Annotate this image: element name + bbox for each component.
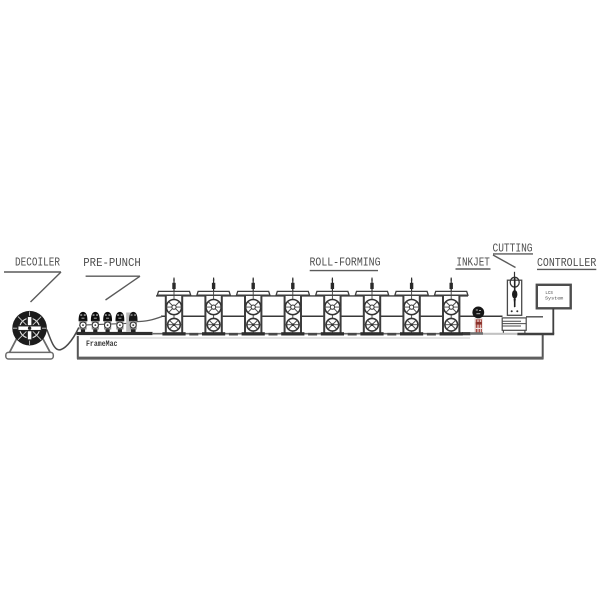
svg-text:INKJET: INKJET bbox=[456, 256, 490, 269]
svg-text:System: System bbox=[545, 296, 563, 302]
svg-text:CONTROLLER: CONTROLLER bbox=[537, 257, 596, 270]
svg-text:DECOILER: DECOILER bbox=[15, 257, 60, 270]
svg-text:FrameMac: FrameMac bbox=[86, 339, 118, 349]
svg-text:ROLL-FORMING: ROLL-FORMING bbox=[310, 257, 381, 270]
svg-text:LCS: LCS bbox=[545, 290, 553, 296]
svg-text:PRE-PUNCH: PRE-PUNCH bbox=[83, 257, 141, 270]
